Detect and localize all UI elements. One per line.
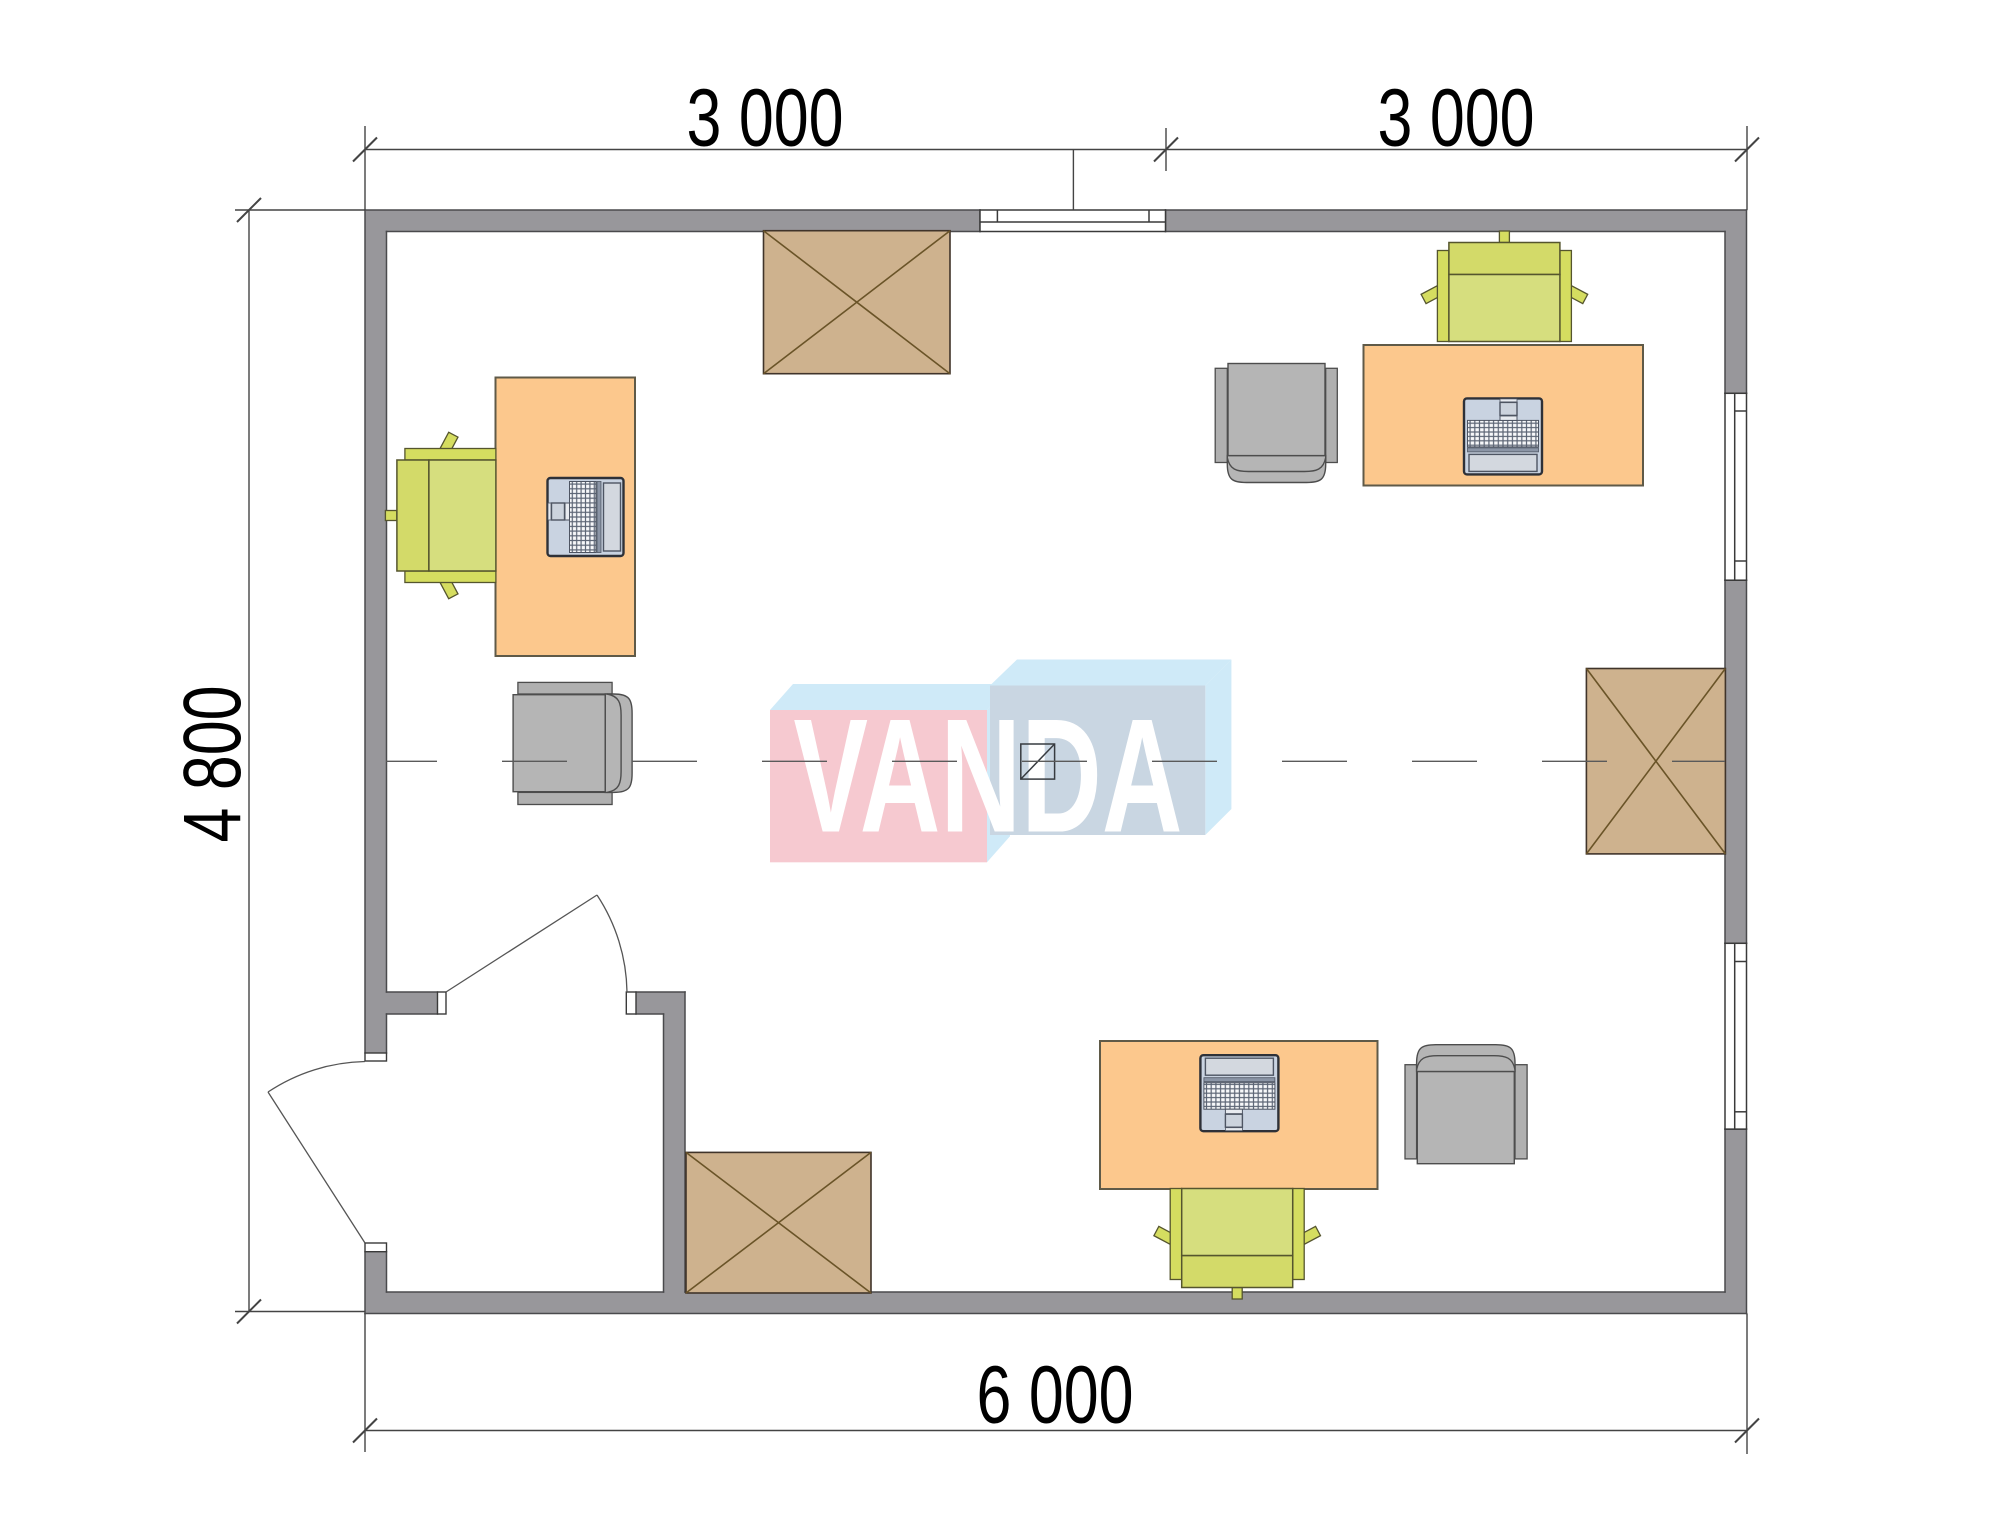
svg-text:3 000: 3 000	[1378, 72, 1535, 163]
svg-text:6 000: 6 000	[977, 1350, 1134, 1441]
svg-text:4 800: 4 800	[167, 686, 258, 843]
svg-text:VANDA: VANDA	[793, 686, 1182, 866]
svg-text:3 000: 3 000	[687, 72, 844, 163]
